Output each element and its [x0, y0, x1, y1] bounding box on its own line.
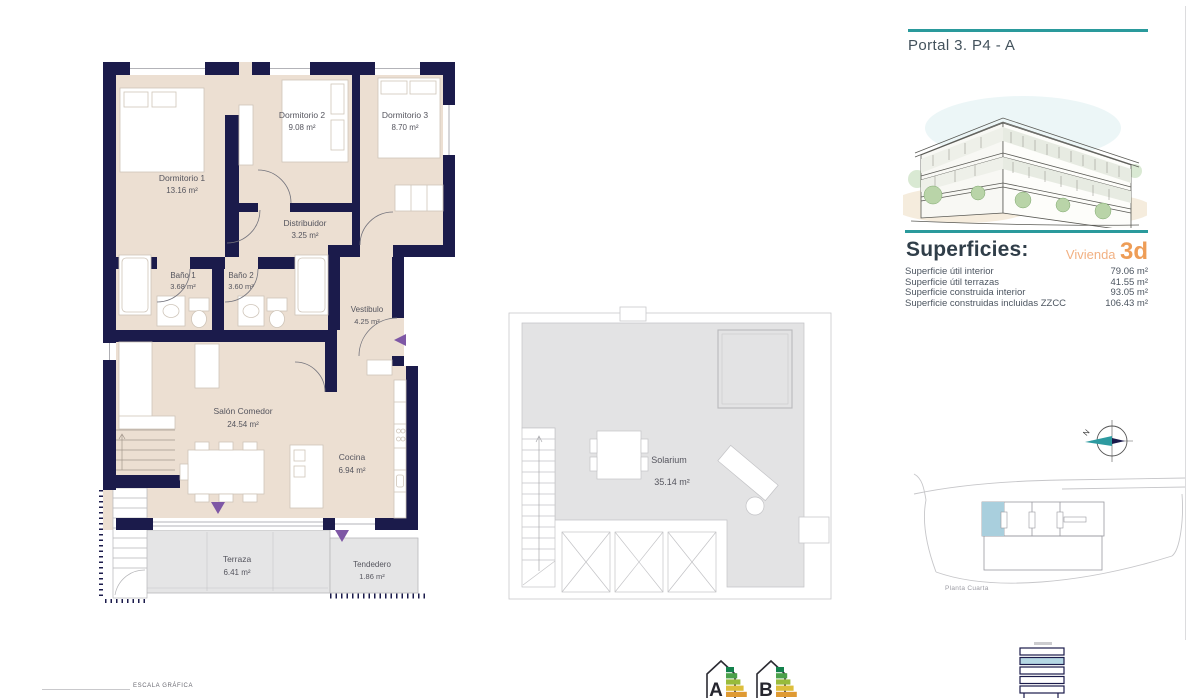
room-name: Dormitorio 3	[382, 110, 429, 120]
room-area: 24.54 m²	[227, 420, 259, 429]
room-area: 3.60 m²	[228, 282, 254, 291]
scale-label: ESCALA GRÁFICA	[133, 683, 193, 689]
room-area: 1.86 m²	[359, 572, 385, 581]
room-name: Cocina	[339, 452, 366, 462]
room-name: Dormitorio 1	[159, 173, 206, 183]
room-name: Vestibulo	[351, 305, 384, 314]
building-sketch	[903, 83, 1147, 228]
solarium-stairs	[522, 428, 555, 587]
superficies-row: Superficie construidas incluidas ZZCC 10…	[905, 299, 1148, 310]
apartment-floor-plan: Dormitorio 1 13.16 m² Dormitorio 2 9.08 …	[95, 50, 475, 605]
teal-rule-top	[908, 29, 1148, 32]
scale-bar	[42, 689, 130, 690]
portal-title: Portal 3. P4 - A	[908, 37, 1015, 54]
vivienda-label: Vivienda	[1066, 247, 1116, 262]
energy-letter: A	[709, 680, 723, 698]
roof-lights	[562, 532, 716, 592]
room-area: 6.94 m²	[338, 466, 365, 475]
room-area: 35.14 m²	[654, 477, 690, 487]
superficie-label: Superficie construida interior	[905, 288, 1025, 299]
energy-rating-b-icon: B	[752, 656, 798, 698]
room-name: Salón Comedor	[213, 406, 272, 416]
superficie-value: 106.43 m²	[1105, 299, 1148, 310]
room-name: Baño 2	[228, 271, 254, 280]
exterior-staircase	[113, 488, 147, 598]
superficie-value: 79.06 m²	[1111, 267, 1149, 278]
superficie-label: Superficie útil interior	[905, 267, 994, 278]
solarium-plan: Solarium 35.14 m²	[503, 303, 838, 603]
superficies-row: Superficie construida interior 93.05 m²	[905, 288, 1148, 299]
room-area: 3.25 m²	[291, 231, 318, 240]
room-area: 13.16 m²	[166, 186, 198, 195]
building-section-diagram	[1008, 642, 1080, 698]
room-area: 9.08 m²	[288, 123, 315, 132]
room-name: Terraza	[223, 554, 252, 564]
superficies-table: Superficie útil interior 79.06 m² Superf…	[905, 267, 1148, 309]
vivienda-code: 3d	[1120, 238, 1148, 265]
room-area: 6.41 m²	[223, 568, 250, 577]
superficies-title: Superficies:	[906, 238, 1029, 262]
superficies-row: Superficie útil interior 79.06 m²	[905, 267, 1148, 278]
energy-rating-a-icon: A	[702, 656, 748, 698]
room-area: 8.70 m²	[391, 123, 418, 132]
room-name: Baño 1	[170, 271, 196, 280]
compass-north-label: N	[1081, 428, 1091, 438]
section-floor-highlight	[1020, 658, 1064, 665]
room-name: Tendedero	[353, 560, 391, 569]
page-divider-line	[1185, 6, 1186, 640]
site-plan-caption: Planta Cuarta	[945, 585, 989, 592]
vivienda-tag: Vivienda 3d	[1040, 238, 1148, 266]
superficie-value: 93.05 m²	[1111, 288, 1149, 299]
floorplan-page: { "panel": { "portal_title": "Portal 3. …	[0, 0, 1200, 698]
superficie-label: Superficie construidas incluidas ZZCC	[905, 299, 1066, 310]
room-area: 4.25 m²	[354, 317, 380, 326]
room-area: 3.68 m²	[170, 282, 196, 291]
site-plan	[912, 460, 1188, 592]
teal-rule-superficies	[905, 230, 1148, 233]
room-name: Dormitorio 2	[279, 110, 326, 120]
energy-letter: B	[759, 680, 773, 698]
room-name: Distribuidor	[284, 218, 327, 228]
room-name: Solarium	[651, 455, 687, 465]
